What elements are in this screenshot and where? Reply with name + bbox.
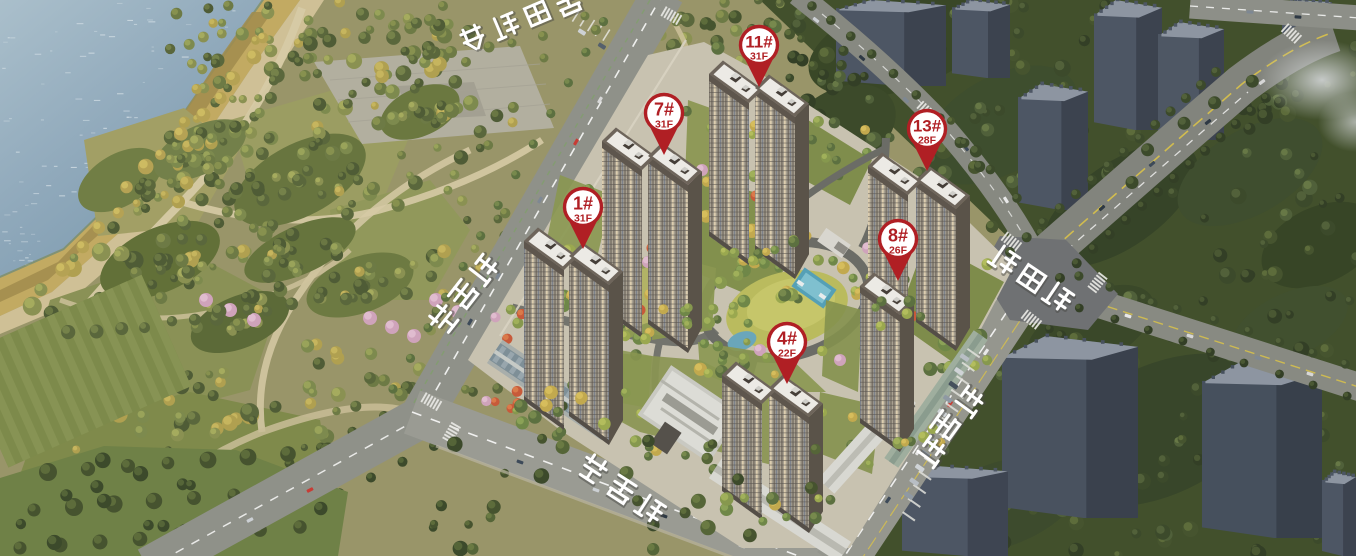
svg-text:4#: 4#	[777, 329, 797, 349]
svg-text:7#: 7#	[654, 100, 674, 120]
svg-text:31F: 31F	[574, 213, 593, 225]
svg-text:28F: 28F	[918, 135, 937, 147]
svg-text:22F: 22F	[778, 348, 797, 360]
svg-text:31F: 31F	[655, 119, 674, 131]
svg-text:13#: 13#	[913, 117, 942, 136]
svg-text:11#: 11#	[745, 33, 773, 52]
svg-text:8#: 8#	[888, 226, 908, 246]
svg-text:1#: 1#	[573, 194, 593, 214]
svg-text:26F: 26F	[889, 245, 908, 257]
svg-text:31F: 31F	[750, 51, 769, 63]
